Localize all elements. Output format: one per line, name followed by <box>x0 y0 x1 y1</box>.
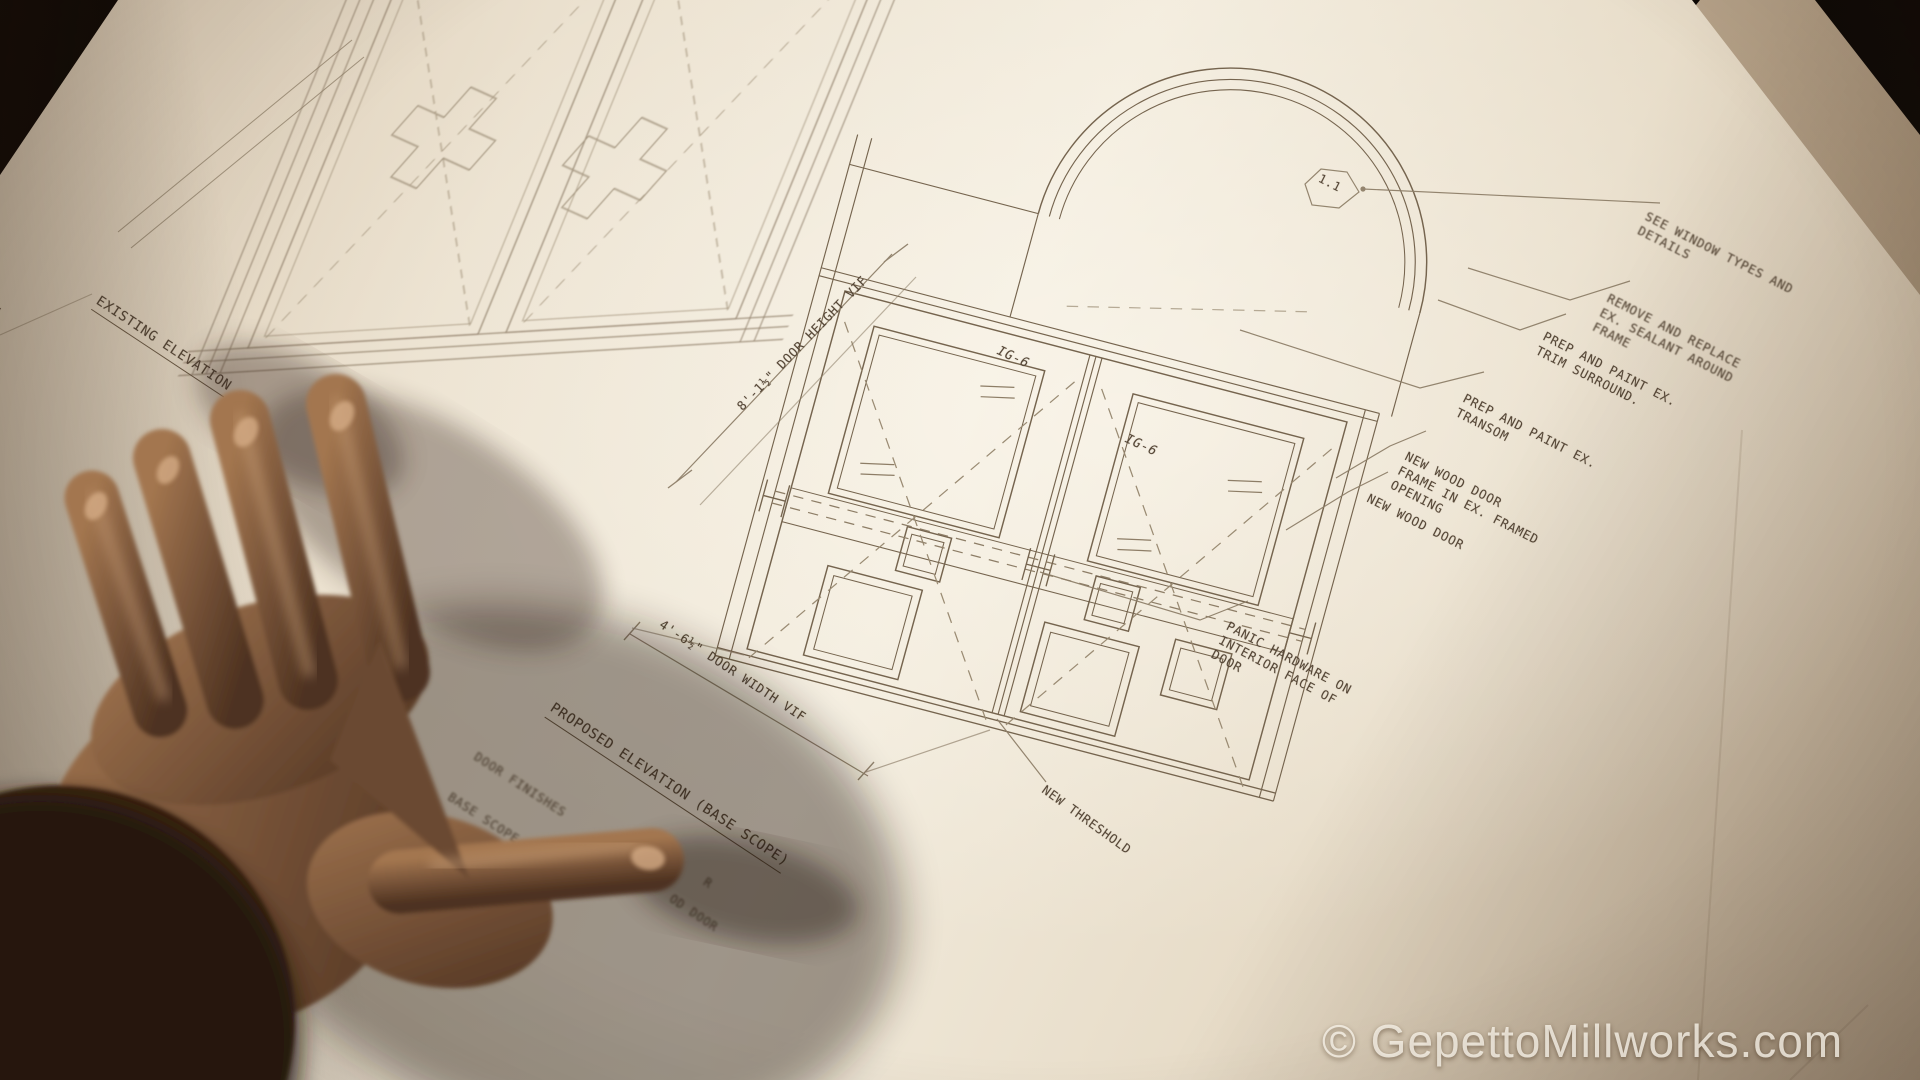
photo-of-blueprint: TION EXISTING ELEVATION 8'-1½" DOOR HEIG… <box>0 0 1920 1080</box>
hand-on-blueprint <box>0 0 1920 1080</box>
watermark: © GepettoMillworks.com <box>1322 1014 1843 1068</box>
